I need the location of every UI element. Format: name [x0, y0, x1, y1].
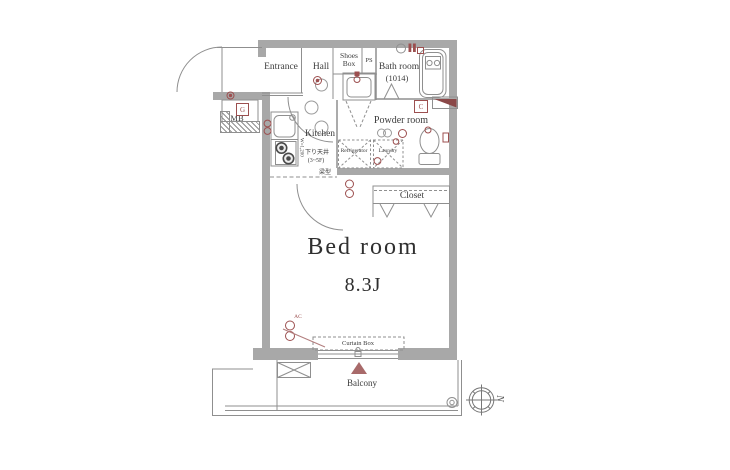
stove-icon [276, 143, 293, 164]
room-label-closet: Closet [400, 191, 424, 201]
floorplan: Entrance Hall Shoes Box PS Bath room (10… [0, 0, 730, 470]
compass-icon [466, 385, 497, 416]
room-label-refrigerator: Refrigerator [341, 148, 368, 154]
bathtub-icon [420, 50, 447, 98]
outlet-icon-powder [399, 130, 407, 138]
annotation-lowered-ceiling-2: (3~5F) [308, 158, 325, 165]
room-label-kitchen: Kitchen [305, 129, 335, 139]
entrance-door-arc [177, 47, 222, 92]
gas-meter-mark: G [236, 103, 249, 116]
annotation-kitchen-width: W=1,200 [298, 138, 304, 157]
room-label-bedroom-size: 8.3J [345, 274, 382, 296]
ac-outlet-icon [286, 321, 295, 330]
room-label-ps: PS [365, 57, 372, 64]
room-label-laundry: Laundry [379, 148, 398, 154]
laundry-outlet-icon [374, 158, 381, 165]
window-icon [318, 348, 398, 359]
ac-outdoor-unit-icon [278, 363, 311, 378]
room-label-curtain-box: Curtain Box [342, 340, 374, 347]
beam-triangle-icon [434, 99, 457, 108]
room-label-bath-size: (1014) [386, 74, 409, 83]
bath-door-mark [384, 84, 399, 99]
bath-light-icon [397, 44, 406, 53]
north-label: N [494, 395, 505, 402]
powder-door-dashes [346, 101, 371, 127]
room-label-bedroom: Bed room [307, 234, 418, 260]
toilet-icon [419, 129, 440, 165]
annotation-ac: AC [294, 314, 302, 320]
balcony-lines [212, 360, 462, 416]
room-label-balcony: Balcony [347, 379, 377, 389]
room-label-shoes-box: Shoes Box [335, 52, 363, 69]
room-label-hall: Hall [313, 62, 329, 72]
washlet-remote-icon [443, 133, 449, 142]
room-label-bath: Bath room [379, 62, 419, 72]
kitchen-sink-icon [274, 116, 295, 138]
toilet-outlet-icon [425, 127, 431, 133]
ac-pipe-line [283, 329, 325, 347]
balcony-entry-triangle-icon [351, 362, 367, 374]
c-mark: C [414, 100, 428, 113]
room-label-powder: Powder room [374, 115, 428, 126]
room-label-entrance: Entrance [264, 62, 298, 72]
annotation-beam: 梁型 [319, 170, 331, 177]
annotation-lowered-ceiling-1: 下り天井 [305, 150, 329, 157]
bedroom-door-arc [297, 184, 343, 230]
